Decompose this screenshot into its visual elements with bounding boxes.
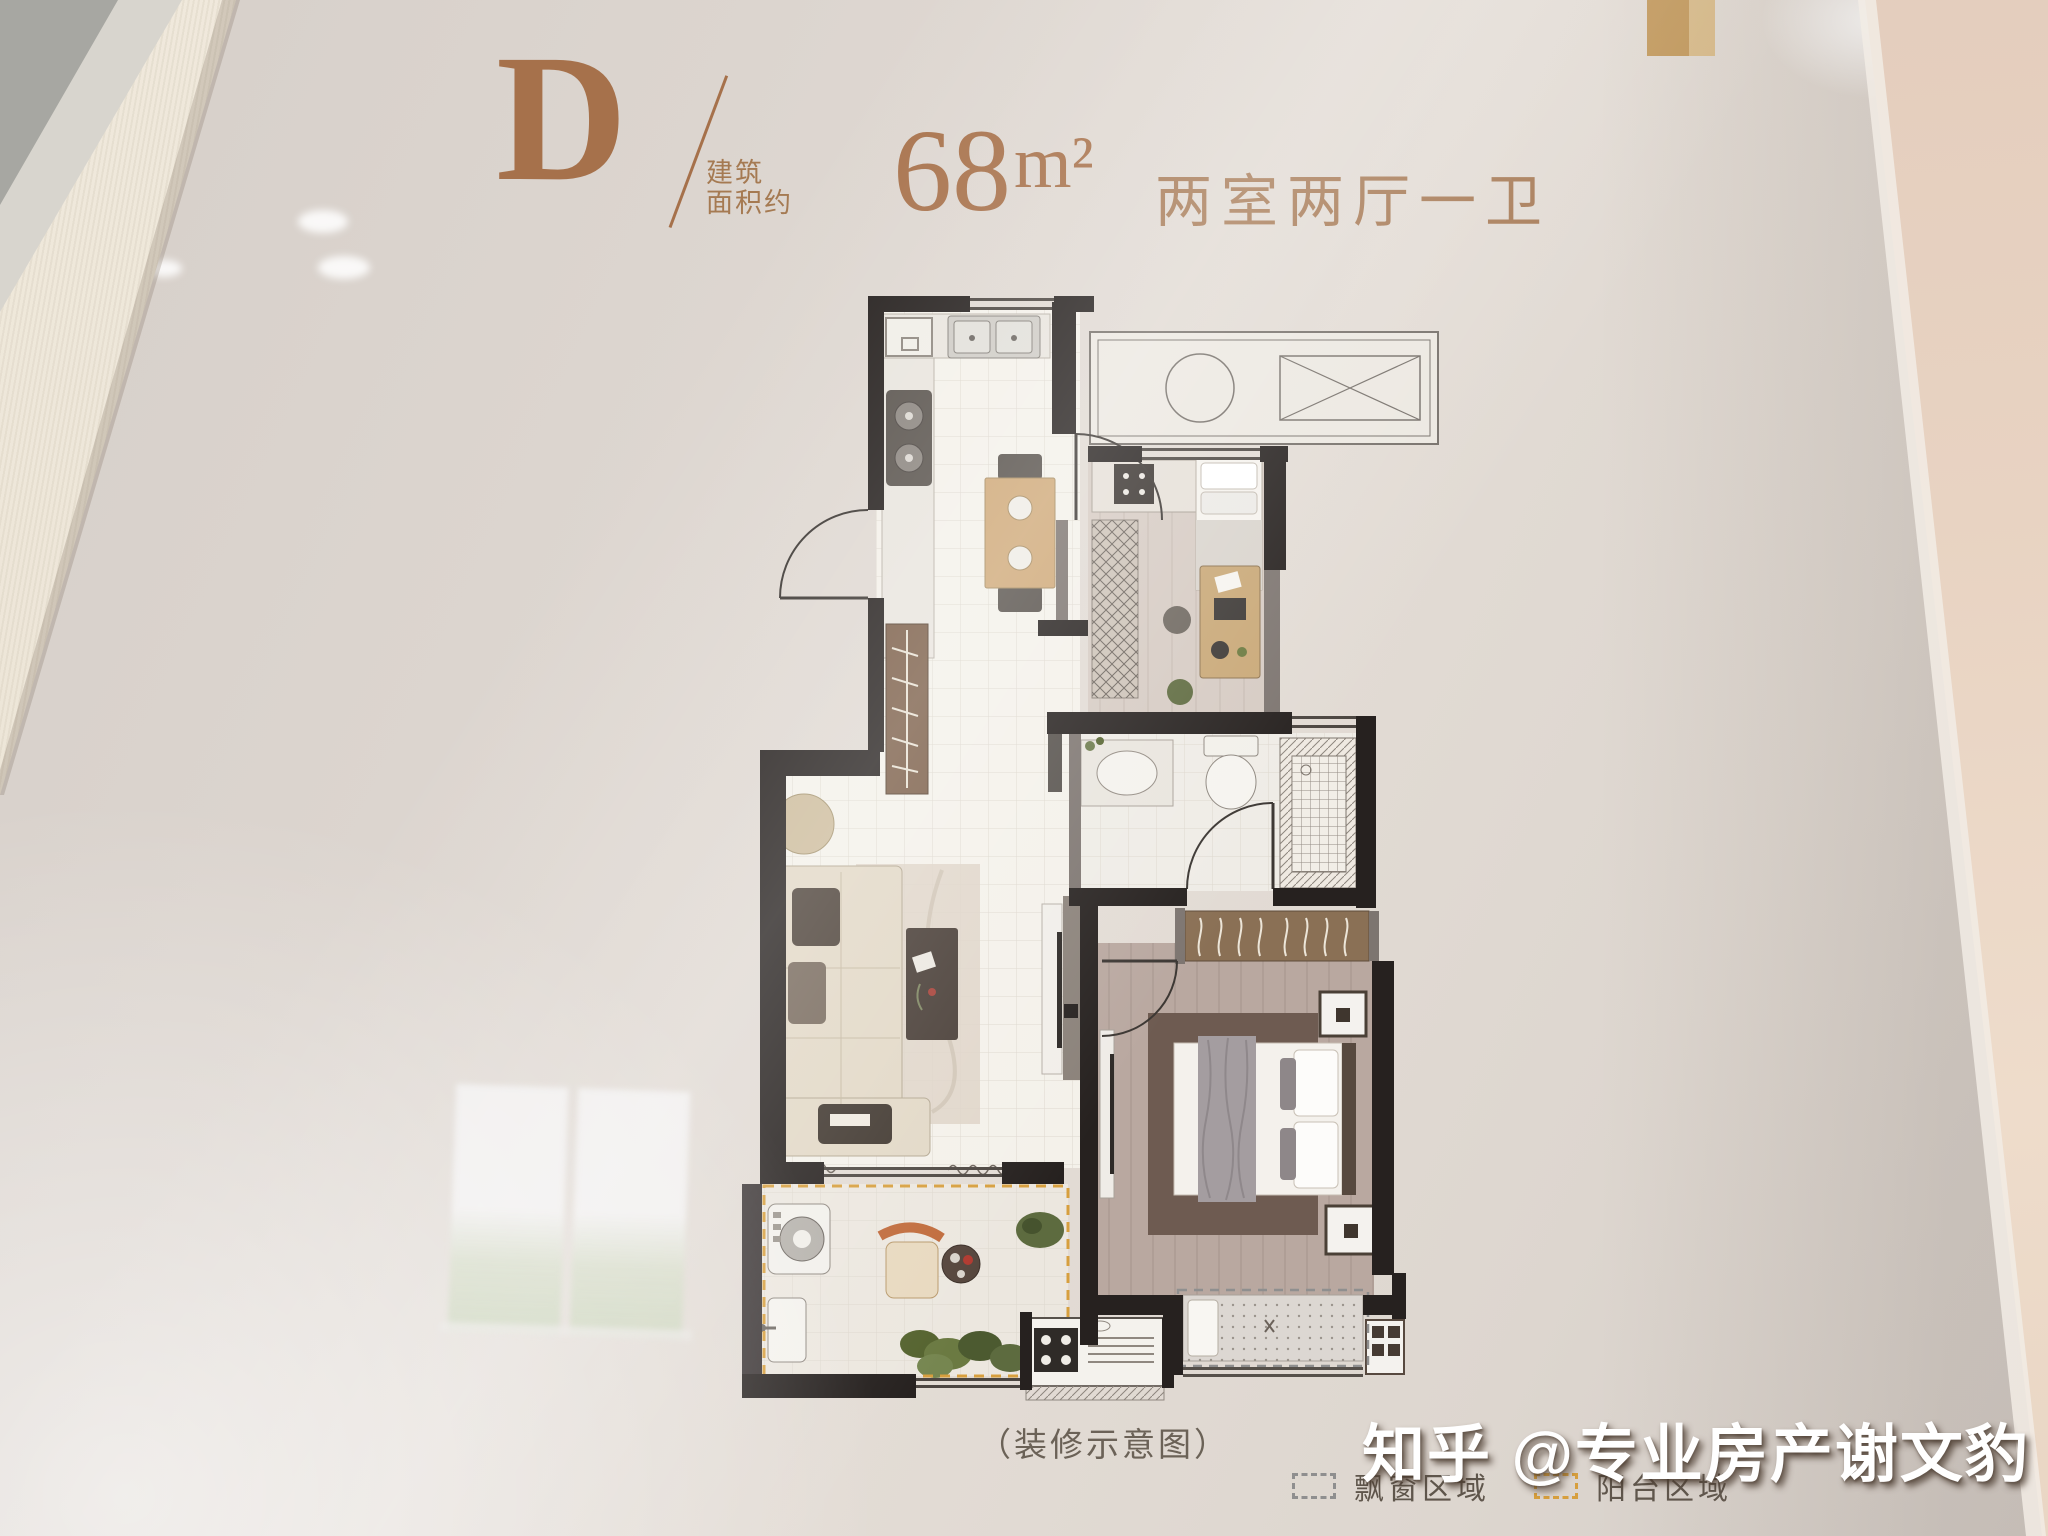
- photo-of-floorplan-poster: D 建筑 面积约 68 m² 两室两厅一卫: [0, 0, 2048, 1536]
- poster-board: D 建筑 面积约 68 m² 两室两厅一卫: [0, 0, 2048, 1536]
- ceiling-light-reflection: [318, 256, 370, 279]
- ceiling-light-reflection: [298, 210, 348, 233]
- window-reflection-pane: [448, 1084, 569, 1336]
- watermark: 知乎 @专业房产谢文豹: [1362, 1404, 2030, 1495]
- window-reflection-pane: [570, 1088, 691, 1340]
- window-reflection: [448, 1084, 695, 1340]
